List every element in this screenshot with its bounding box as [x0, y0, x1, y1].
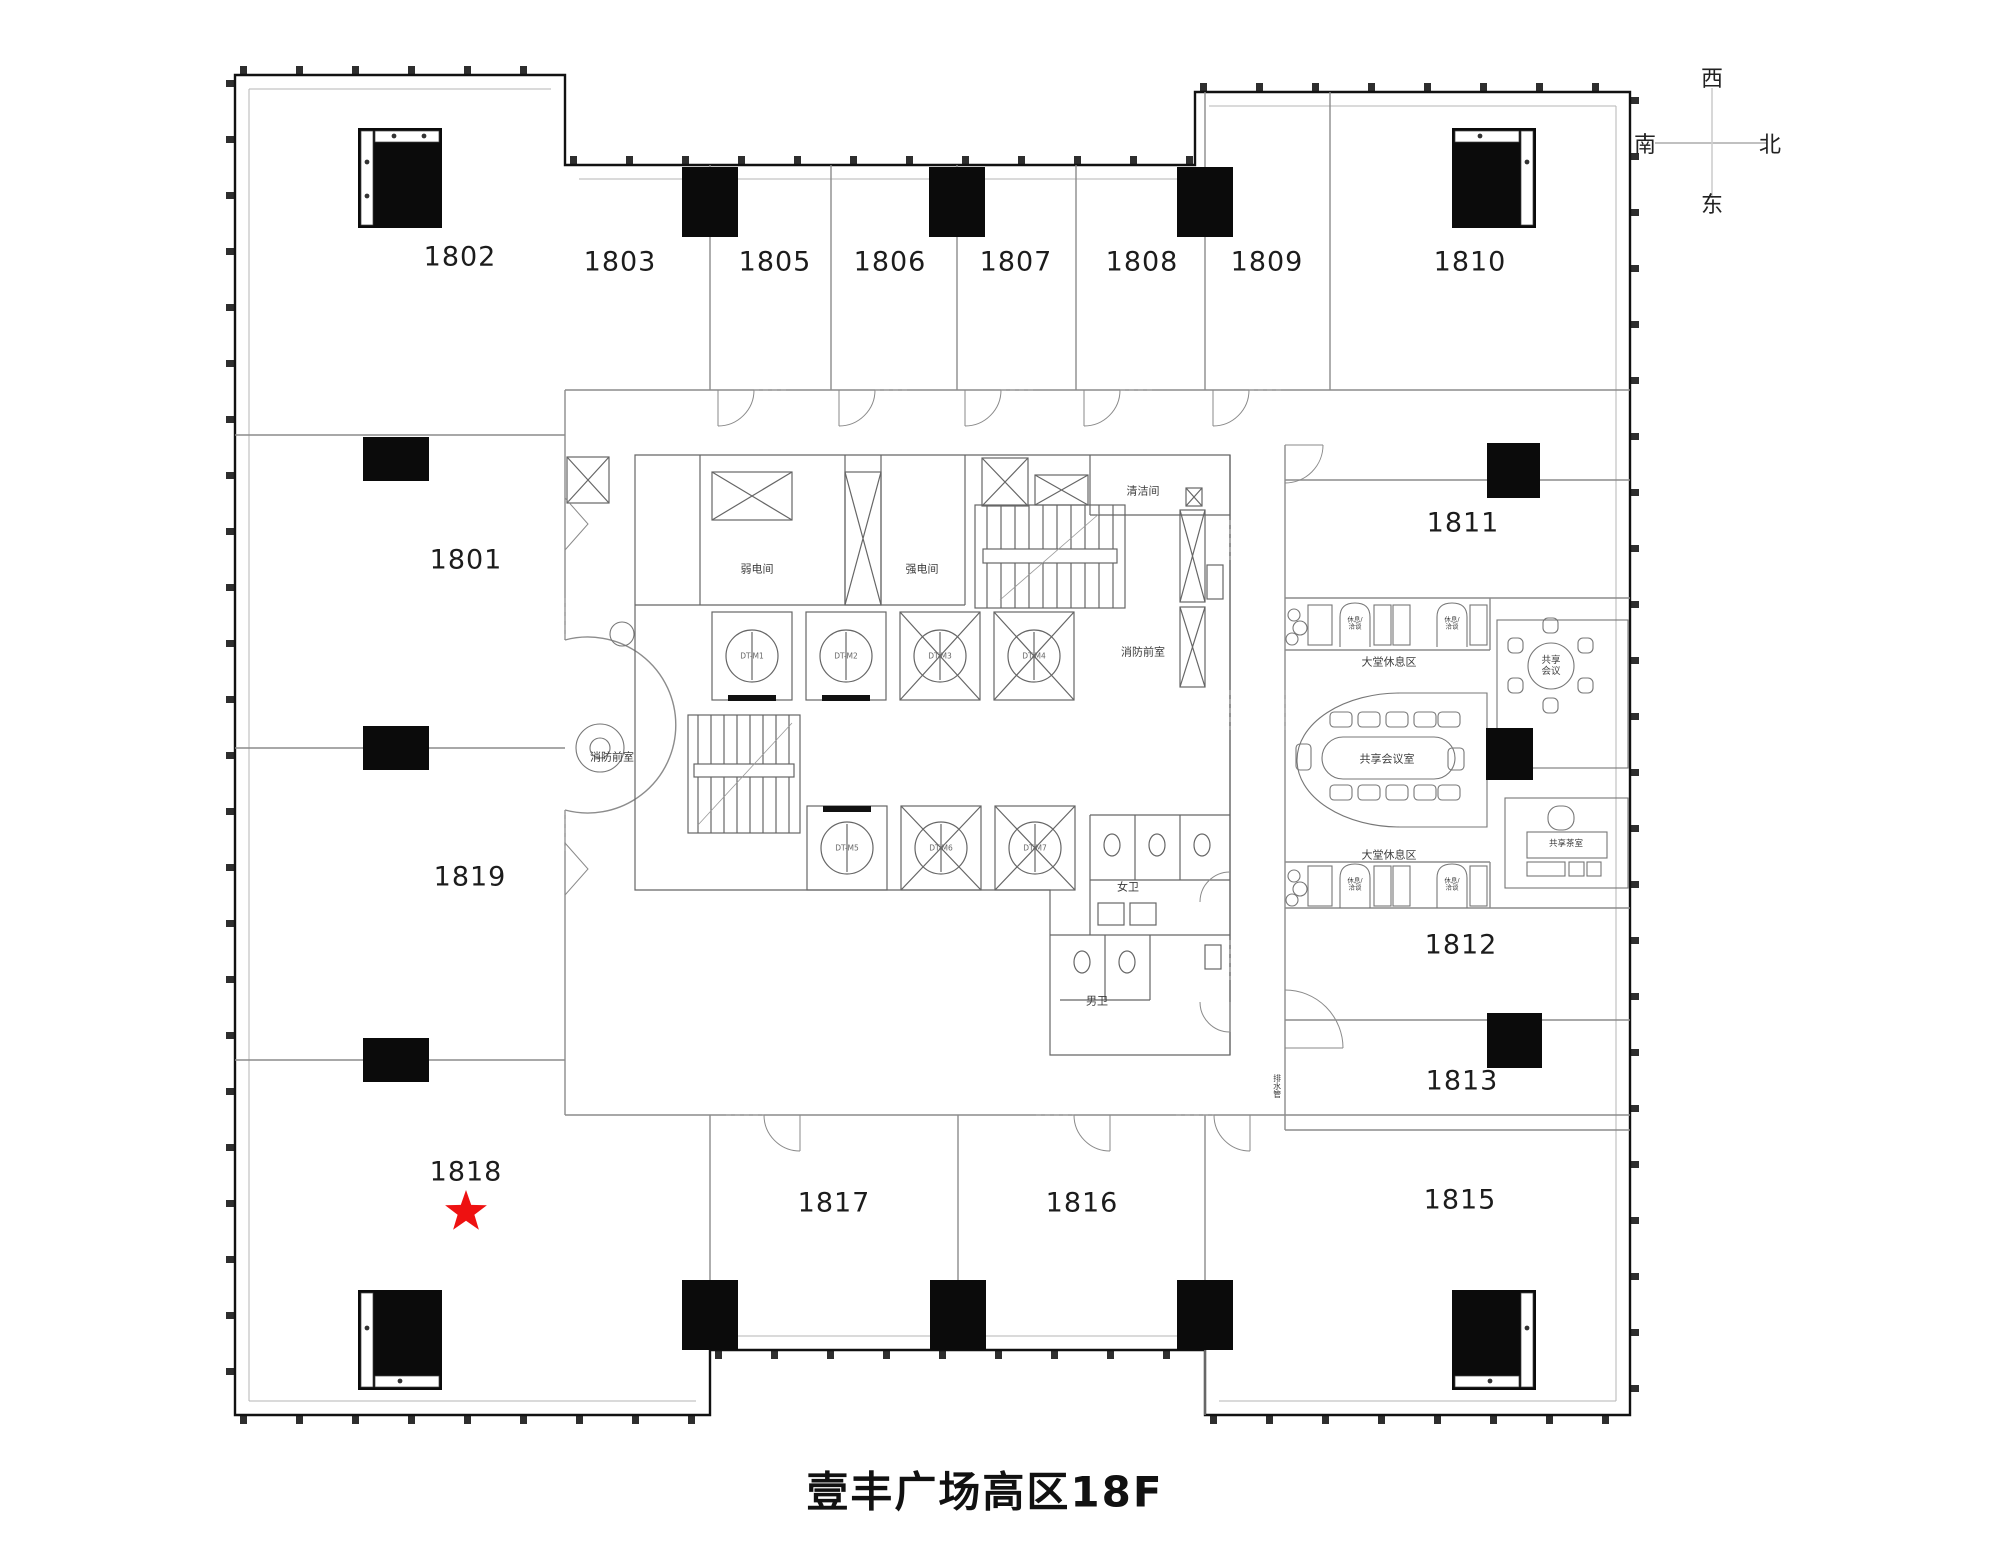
plan-label: 清洁间	[1127, 486, 1160, 499]
partition-walls	[235, 92, 1630, 1415]
plan-label: 消防前室	[1121, 647, 1165, 660]
plan-label: 女卫	[1117, 882, 1139, 895]
compass-south: 南	[1634, 127, 1656, 159]
room-label-1807: 1807	[980, 246, 1053, 277]
compass-north: 北	[1759, 127, 1781, 159]
corner-column-bolts	[365, 134, 1530, 1384]
plan-label: 共享茶室	[1549, 840, 1583, 850]
plan-label: 休息/洽谈	[1444, 878, 1459, 893]
plan-label: 休息/洽谈	[1444, 617, 1459, 632]
floorplan-drawing	[0, 0, 2000, 1547]
room-label-1808: 1808	[1106, 246, 1179, 277]
elevator-tag: DT-M6	[929, 844, 953, 853]
plan-label: 休息/洽谈	[1347, 878, 1362, 893]
compass-east: 东	[1701, 187, 1723, 219]
plan-label: 共享会议室	[1360, 754, 1415, 767]
core-walls	[567, 455, 1230, 1055]
elevator-tag: DT-M7	[1023, 844, 1047, 853]
plan-label: 大堂休息区	[1362, 657, 1417, 670]
room-label-1806: 1806	[854, 246, 927, 277]
plan-label: 共享会议	[1541, 656, 1560, 678]
page-title: 壹丰广场高区18F	[806, 1459, 1163, 1520]
room-label-1813: 1813	[1426, 1065, 1499, 1096]
elevator-tag: DT-M1	[740, 652, 764, 661]
room-label-1809: 1809	[1231, 246, 1304, 277]
room-label-1805: 1805	[739, 246, 812, 277]
plan-label: 强电间	[906, 564, 939, 577]
highlight-star	[445, 1190, 487, 1230]
elevator-tag: DT-M5	[835, 844, 859, 853]
plan-label: 休息/洽谈	[1347, 617, 1362, 632]
plan-label: 男卫	[1086, 996, 1108, 1009]
facade-inner-line	[249, 89, 1616, 1401]
door-swings	[565, 390, 1343, 1151]
corner-column-details	[361, 131, 1533, 1387]
room-label-1802: 1802	[424, 241, 497, 272]
elevator-tag: DT-M4	[1022, 652, 1046, 661]
room-label-1817: 1817	[798, 1187, 871, 1218]
exterior-walls	[235, 75, 1630, 1415]
room-label-1818: 1818	[430, 1156, 503, 1187]
plan-label: 大堂休息区	[1362, 850, 1417, 863]
compass-west: 西	[1701, 61, 1723, 93]
elevator-tag: DT-M2	[834, 652, 858, 661]
room-label-1819: 1819	[434, 861, 507, 892]
room-label-1815: 1815	[1424, 1184, 1497, 1215]
elevator-tag: DT-M3	[928, 652, 952, 661]
room-label-1801: 1801	[430, 544, 503, 575]
plan-label: 排水管	[1272, 1074, 1281, 1098]
room-label-1803: 1803	[584, 246, 657, 277]
floorplan-page: 1802180318051806180718081809181018011811…	[0, 0, 2000, 1547]
room-label-1810: 1810	[1434, 246, 1507, 277]
compass-cross	[1655, 88, 1767, 198]
door-thresholds	[565, 390, 1285, 1115]
room-label-1811: 1811	[1427, 507, 1500, 538]
room-label-1812: 1812	[1425, 929, 1498, 960]
room-label-1816: 1816	[1046, 1187, 1119, 1218]
plan-label: 消防前室	[590, 752, 634, 765]
plan-label: 弱电间	[741, 564, 774, 577]
